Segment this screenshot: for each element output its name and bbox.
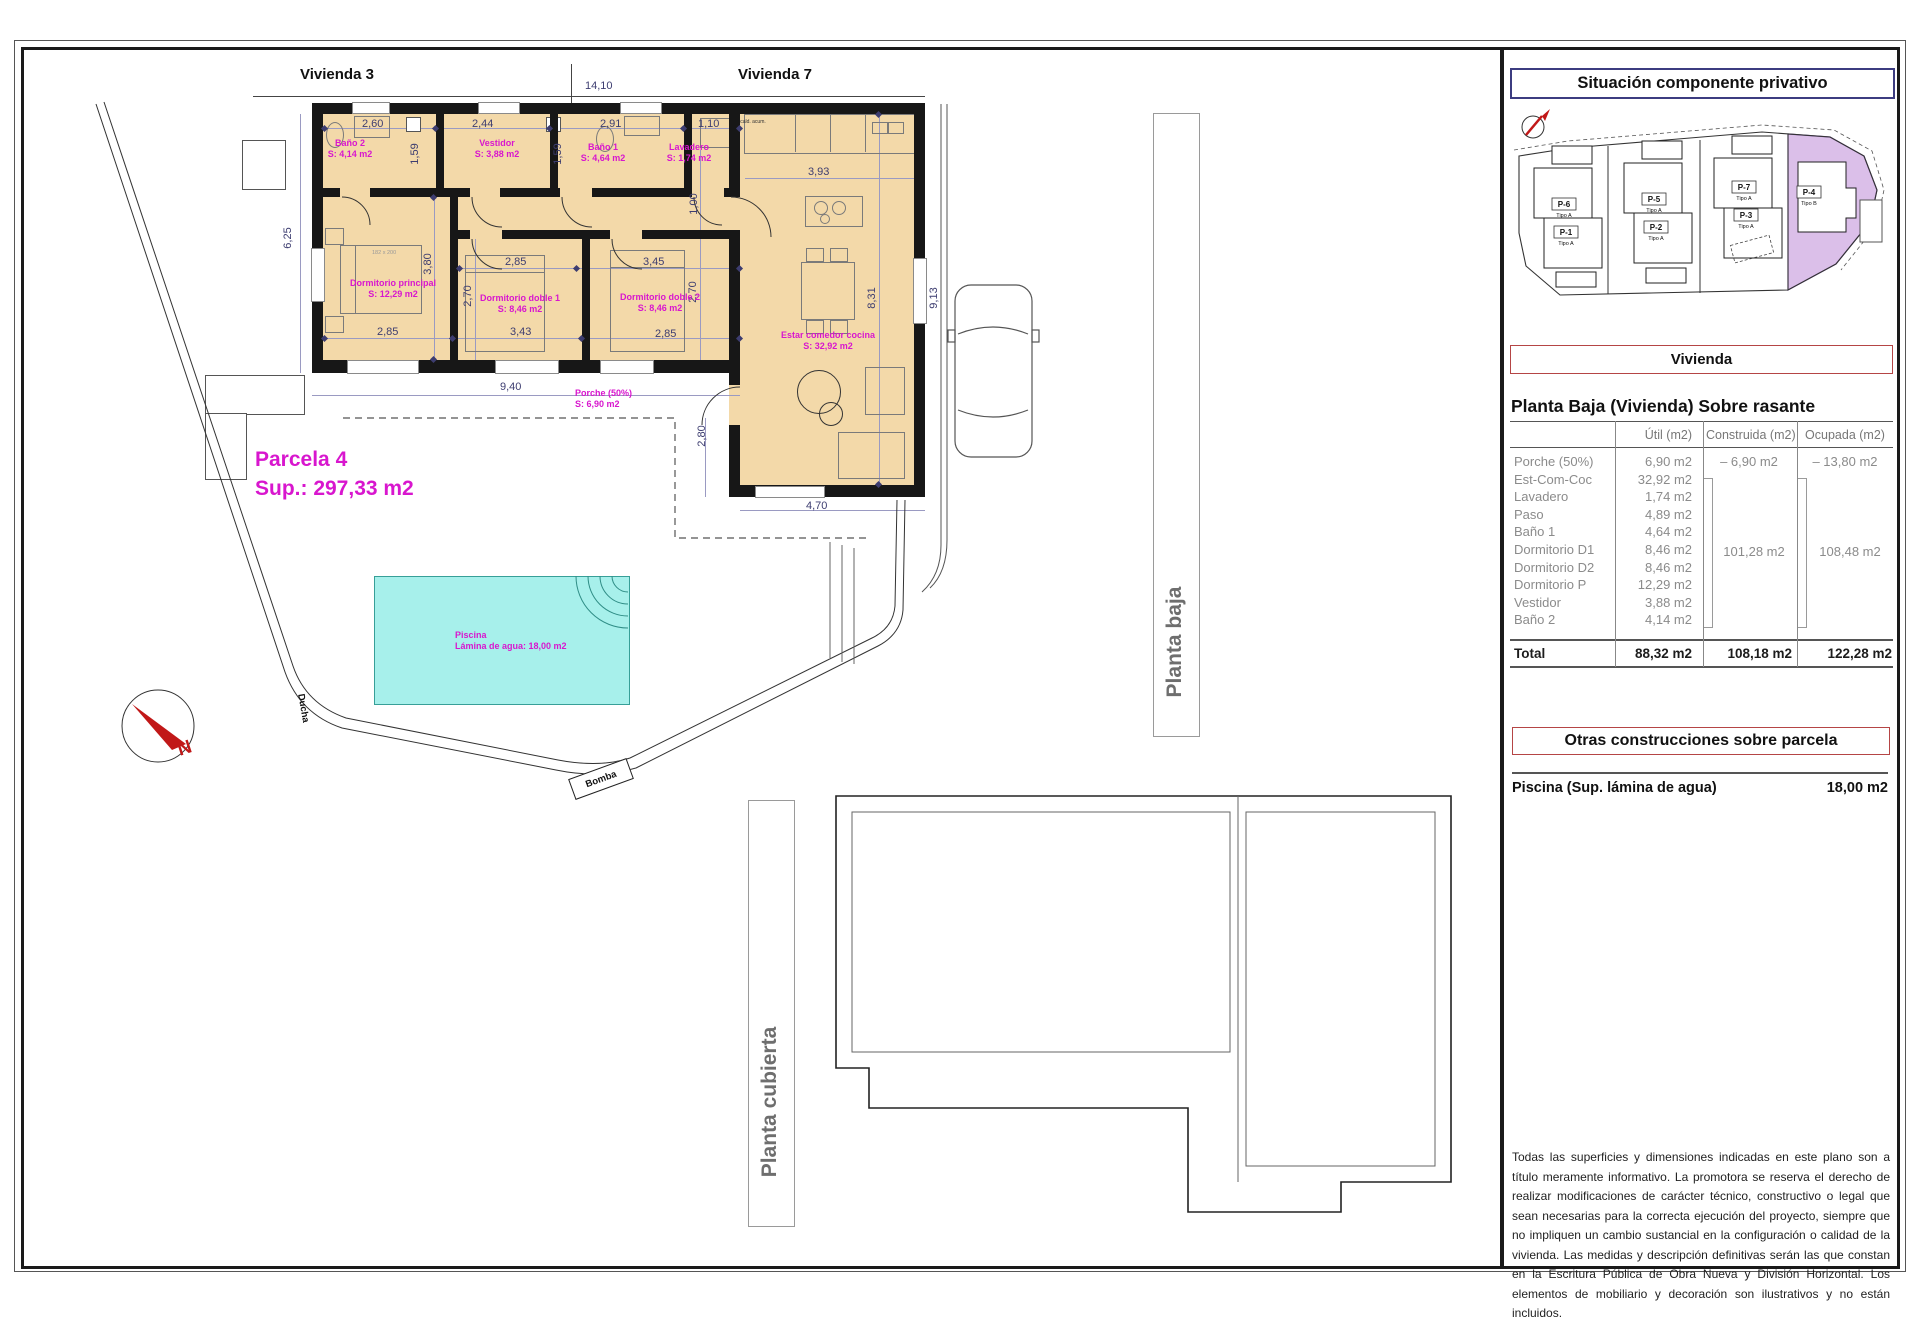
dim-total-width: 14,10 <box>585 80 613 92</box>
map-parcel-code: P-3 <box>1740 211 1753 220</box>
map-parcel-tipo: Tipo A <box>1556 213 1572 219</box>
parcela-sup: Sup.: 297,33 m2 <box>255 474 414 503</box>
dim-cocina: 3,93 <box>808 166 829 178</box>
dim-doble1-top: 2,85 <box>505 256 526 268</box>
construida-group-value: 101,28 m2 <box>1716 544 1792 559</box>
pool-name: Piscina <box>455 630 595 641</box>
pool-label: Piscina Lámina de agua: 18,00 m2 <box>455 630 595 651</box>
map-parcel-code: P-1 <box>1560 228 1573 237</box>
ocupada-group-value: 108,48 m2 <box>1810 544 1890 559</box>
dim-living-b: 4,70 <box>806 500 827 512</box>
pool-steps-arcs <box>576 576 628 628</box>
vivienda3-label: Vivienda 3 <box>300 66 374 83</box>
roof-plan-outline <box>836 796 1451 1212</box>
cell-util: 8,46 m2 <box>1592 560 1692 575</box>
map-parcel-code: P-2 <box>1650 223 1663 232</box>
table-row: Est-Com-Coc <box>1514 472 1592 487</box>
table-row: Paso <box>1514 507 1544 522</box>
total-label: Total <box>1514 646 1545 661</box>
map-parcel-tipo: Tipo A <box>1738 224 1754 230</box>
dim-doble2-b: 2,85 <box>655 328 676 340</box>
cell-util: 3,88 m2 <box>1592 595 1692 610</box>
col-header-construida: Construida (m2) <box>1706 428 1794 442</box>
cell-util: 4,64 m2 <box>1592 524 1692 539</box>
room-label-lavadero: LavaderoS: 1,74 m2 <box>650 142 728 163</box>
map-parcel-code: P-7 <box>1738 183 1751 192</box>
map-parcel-tipo: Tipo A <box>1736 196 1752 202</box>
piscina-label: Piscina (Sup. lámina de agua) <box>1512 780 1717 796</box>
room-label-doble1: Dormitorio doble 1S: 8,46 m2 <box>458 293 582 314</box>
table-row: Vestidor <box>1514 595 1561 610</box>
dim-porche-w: 9,40 <box>500 381 521 393</box>
dim-doble2-top: 3,45 <box>643 256 664 268</box>
dim-estar: 8,31 <box>866 268 878 328</box>
map-parcel-tipo: Tipo A <box>1558 241 1574 247</box>
col-header-ocupada: Ocupada (m2) <box>1799 428 1891 442</box>
dim-porche-h: 2,80 <box>696 406 708 466</box>
total-ocupada: 122,28 m2 <box>1794 646 1892 661</box>
table-row: Baño 1 <box>1514 524 1555 539</box>
map-parcel-tipo: Tipo A <box>1648 236 1664 242</box>
parcel-boundary <box>96 102 947 774</box>
cell-ocupada: – 13,80 m2 <box>1799 454 1891 469</box>
dim-house-height: 6,25 <box>282 208 294 268</box>
room-label-principal: Dormitorio principalS: 12,29 m2 <box>328 278 458 299</box>
parcela-label: Parcela 4 Sup.: 297,33 m2 <box>255 445 414 503</box>
cell-util: 6,90 m2 <box>1592 454 1692 469</box>
map-compass-icon <box>1522 109 1550 138</box>
col-header-util: Útil (m2) <box>1600 428 1692 442</box>
cell-util: 4,14 m2 <box>1592 612 1692 627</box>
disclaimer-text: Todas las superficies y dimensiones indi… <box>1512 1148 1890 1324</box>
table-row: Baño 2 <box>1514 612 1555 627</box>
room-label-vestidor: VestidorS: 3,88 m2 <box>442 138 552 159</box>
map-parcel-code: P-6 <box>1558 200 1571 209</box>
dim-paso: 1,00 <box>688 174 700 234</box>
dim-vestidor: 2,44 <box>472 118 493 130</box>
cell-construida: – 6,90 m2 <box>1706 454 1792 469</box>
dim-lavadero: 1,10 <box>698 118 719 130</box>
map-parcel-code: P-4 <box>1803 188 1816 197</box>
parcela-name: Parcela 4 <box>255 445 414 474</box>
cell-util: 1,74 m2 <box>1592 489 1692 504</box>
cell-util: 8,46 m2 <box>1592 542 1692 557</box>
map-parcel-tipo: Tipo B <box>1801 201 1817 207</box>
table-row: Dormitorio D1 <box>1514 542 1594 557</box>
pool-area: Lámina de agua: 18,00 m2 <box>455 641 595 652</box>
dim-parcela-right: 9,13 <box>928 268 940 328</box>
architectural-plan-sheet: { "colors": { "room_fill": "#f3d9a9", "l… <box>0 0 1920 1280</box>
cell-util: 12,29 m2 <box>1592 577 1692 592</box>
kitchen-note: cald. acum. <box>740 119 766 125</box>
room-label-bano1: Baño 1S: 4,64 m2 <box>558 142 648 163</box>
room-label-doble2: Dormitorio doble 2S: 8,46 m2 <box>592 292 728 313</box>
room-label-porche: Porche (50%)S: 6,90 m2 <box>575 388 695 409</box>
table-row: Porche (50%) <box>1514 454 1593 469</box>
vivienda7-label: Vivienda 7 <box>738 66 812 83</box>
total-construida: 108,18 m2 <box>1700 646 1792 661</box>
cell-util: 32,92 m2 <box>1592 472 1692 487</box>
map-parcel-code: P-5 <box>1648 195 1661 204</box>
section-title: Planta Baja (Vivienda) Sobre rasante <box>1511 396 1815 417</box>
piscina-value: 18,00 m2 <box>1788 780 1888 796</box>
bed-size-note: 182 x 200 <box>372 250 396 256</box>
room-label-estar: Estar comedor cocinaS: 32,92 m2 <box>768 330 888 351</box>
cell-util: 4,89 m2 <box>1592 507 1692 522</box>
table-row: Dormitorio D2 <box>1514 560 1594 575</box>
site-map: P-6 Tipo A P-1 Tipo A P-5 Tipo A P-2 Tip… <box>1514 125 1884 295</box>
porch-dashed-line <box>343 418 868 538</box>
table-row: Dormitorio P <box>1514 577 1586 592</box>
total-util: 88,32 m2 <box>1592 646 1692 661</box>
car-icon <box>948 285 1039 457</box>
dim-doble1-b: 3,43 <box>510 326 531 338</box>
dim-principal-b: 2,85 <box>377 326 398 338</box>
room-label-bano2: Baño 2S: 4,14 m2 <box>305 138 395 159</box>
drawing-vector-layer: P-6 Tipo A P-1 Tipo A P-5 Tipo A P-2 Tip… <box>0 0 1920 1280</box>
map-parcel-tipo: Tipo A <box>1646 208 1662 214</box>
table-row: Lavadero <box>1514 489 1568 504</box>
dim-bano1: 2,91 <box>600 118 621 130</box>
dim-bano2: 2,60 <box>362 118 383 130</box>
dim-strip-depth-1: 1,59 <box>409 124 421 184</box>
